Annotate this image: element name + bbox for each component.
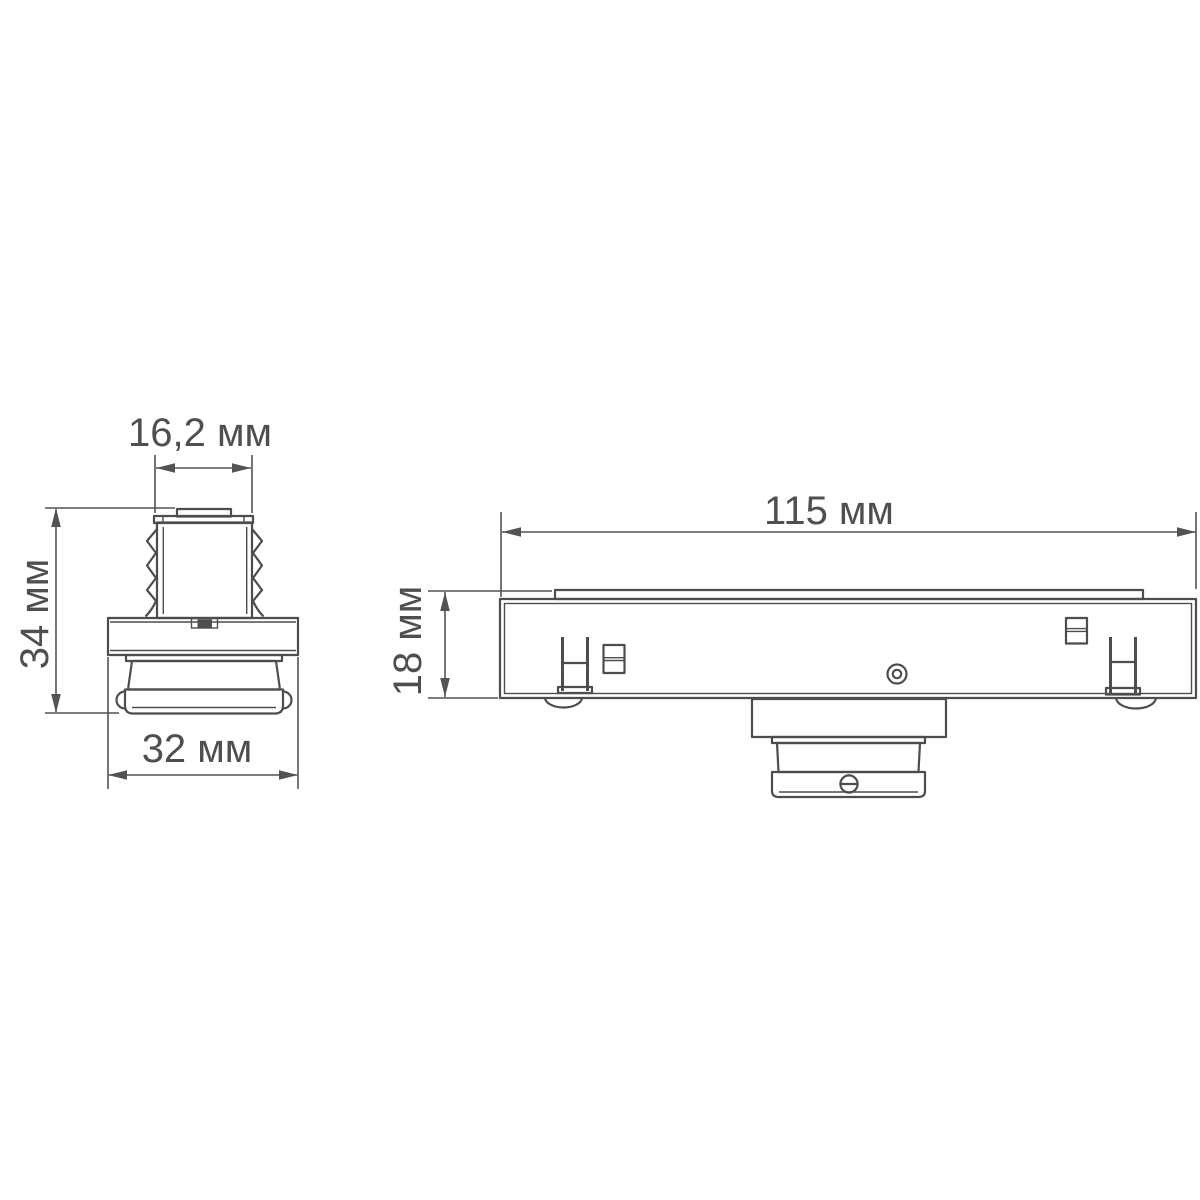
dim-label-flange-width: 32 мм bbox=[142, 727, 253, 771]
arrowhead-left bbox=[108, 770, 127, 780]
contact-clip-left bbox=[558, 637, 592, 693]
arrowhead-top bbox=[51, 508, 61, 527]
base-ring-bump-right bbox=[283, 692, 292, 709]
latch-window-right bbox=[1066, 618, 1087, 644]
arrowhead-bottom bbox=[440, 678, 450, 697]
arrowhead-right bbox=[1177, 527, 1196, 537]
dim-label-top-width: 16,2 мм bbox=[128, 411, 272, 455]
dim-label-overall-height: 34 мм bbox=[13, 559, 57, 670]
screw-hole-outer bbox=[888, 665, 907, 684]
arrowhead-right bbox=[232, 463, 251, 473]
dim-overall-length: 115 мм bbox=[501, 489, 1196, 597]
spring-clip-right bbox=[252, 529, 264, 617]
arrowhead-right bbox=[279, 770, 298, 780]
arrowhead-left bbox=[156, 463, 175, 473]
mid-barrel bbox=[128, 661, 280, 690]
connector-block bbox=[157, 523, 252, 619]
spring-clip-left bbox=[146, 529, 158, 617]
dim-body-height: 18 мм bbox=[386, 586, 552, 698]
stem-collar bbox=[752, 699, 946, 737]
arrowhead-top bbox=[440, 592, 450, 611]
side-view-part bbox=[108, 509, 298, 714]
dim-label-body-height: 18 мм bbox=[386, 586, 430, 697]
dim-top-width: 16,2 мм bbox=[128, 411, 272, 513]
stem-barrel bbox=[777, 743, 920, 772]
contact-clip-right bbox=[1106, 637, 1140, 695]
latch-window-left bbox=[604, 645, 625, 673]
base-ring bbox=[125, 690, 283, 714]
screw-hole-inner bbox=[893, 670, 901, 678]
arrowhead-bottom bbox=[51, 694, 61, 713]
front-view: 115 мм 18 мм bbox=[386, 489, 1196, 797]
dim-flange-width: 32 мм bbox=[108, 657, 298, 789]
support-foot-right bbox=[1116, 698, 1156, 709]
locking-latch-pad bbox=[198, 620, 213, 628]
base-ring-bump-left bbox=[117, 692, 126, 709]
front-view-part bbox=[500, 590, 1196, 797]
body-inner-outline bbox=[505, 604, 1192, 694]
drawing-canvas: 16,2 мм 34 мм 32 мм bbox=[0, 0, 1200, 1200]
latch-frame bbox=[604, 645, 625, 673]
twist-lock-stem bbox=[752, 699, 946, 797]
dim-label-overall-length: 115 мм bbox=[764, 489, 894, 533]
technical-drawing: 16,2 мм 34 мм 32 мм bbox=[0, 0, 1200, 1200]
side-view: 16,2 мм 34 мм 32 мм bbox=[13, 411, 298, 789]
arrowhead-left bbox=[502, 527, 521, 537]
top-rail-lip bbox=[555, 590, 1143, 599]
